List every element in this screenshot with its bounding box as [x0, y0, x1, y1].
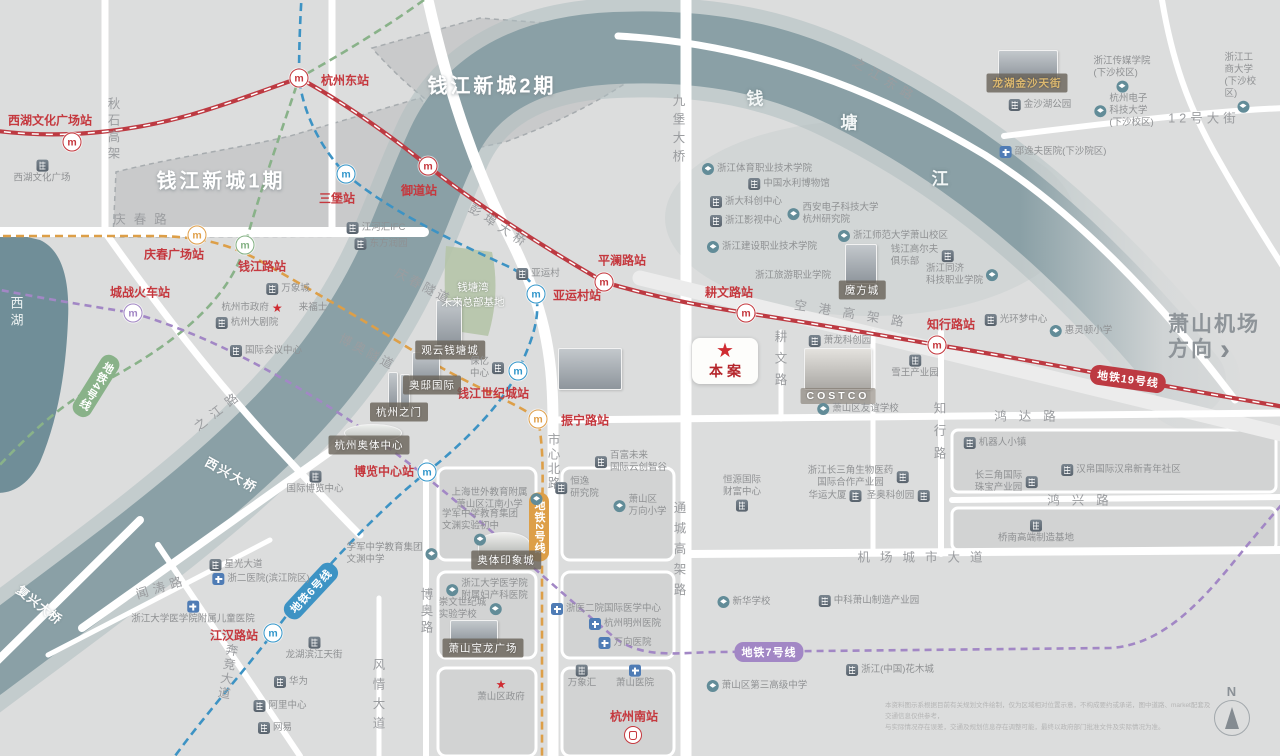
school-icon	[489, 603, 501, 615]
building-plaque: 奥邸国际	[403, 376, 461, 395]
school-icon	[817, 403, 829, 415]
road-label: 知行路	[930, 401, 949, 469]
metro-station-label: 杭州东站	[321, 72, 369, 89]
poi-label: 机器人小镇	[979, 437, 1027, 449]
school-icon	[446, 584, 458, 596]
hospital-icon	[589, 618, 601, 630]
road-label: 彭埠大桥	[465, 198, 534, 252]
poi-label: 金沙湖公园	[1024, 99, 1072, 111]
poi: 浙江(中国)花木城	[846, 664, 934, 676]
compass-circle	[1214, 700, 1250, 736]
poi-label: 恒源国际 财富中心	[723, 475, 761, 499]
poi-label: 浙江旅游职业学院	[755, 270, 831, 282]
hospital-icon	[598, 637, 610, 649]
building-icon	[710, 196, 722, 208]
poi-label: 新华学校	[732, 596, 770, 608]
poi-label: 浙江(中国)花木城	[861, 664, 934, 676]
metro-station-label: 耕文路站	[705, 284, 753, 301]
poi: 阿里中心	[253, 700, 306, 712]
poi: 东方润园	[354, 238, 407, 250]
road-label: 复兴大桥	[13, 580, 67, 628]
metro-line-badge: 地铁7号线	[734, 642, 803, 662]
road-label: 西兴大桥	[202, 452, 262, 497]
poi: 光环梦中心	[985, 314, 1048, 326]
poi-label: 国际博览中心	[286, 484, 343, 496]
metro-station-icon: m	[509, 362, 528, 381]
building-icon	[896, 471, 908, 483]
poi-label: 龙湖滨江天街	[285, 650, 342, 662]
poi-label: 杭州大剧院	[231, 317, 279, 329]
poi-label: 浙江建设职业技术学院	[722, 241, 817, 253]
poi-label: 圣奥科创园	[867, 490, 915, 502]
road-label: 之江路	[189, 384, 247, 435]
poi: 惠灵顿小学	[1050, 325, 1113, 337]
poi: 浙二医院(滨江院区)	[212, 573, 309, 585]
railway-station-icon	[624, 726, 642, 744]
building-icon	[516, 268, 528, 280]
poi-label: 浙江长三角生物医药 国际合作产业园	[808, 465, 894, 489]
poi-label: 国际会议中心	[245, 345, 302, 357]
site-star-icon: ★	[716, 341, 734, 361]
poi: 万象汇	[568, 665, 597, 690]
metro-station-label: 钱江世纪城站	[457, 385, 529, 402]
poi: 星光大道	[209, 559, 262, 571]
poi-label: 惠灵顿小学	[1065, 325, 1113, 337]
poi-label: 中国水利博物馆	[763, 178, 830, 190]
building-icon	[846, 664, 858, 676]
building-icon	[492, 362, 504, 374]
poi-label: 浙江影视中心	[725, 215, 782, 227]
hospital-icon	[629, 665, 641, 677]
star-icon: ★	[496, 679, 507, 691]
poi-label: 浙江体育职业技术学院	[717, 163, 812, 175]
poi: 保亿 中心	[470, 356, 504, 380]
poi: 杭州电子 科技大学 (下沙校区)	[1094, 93, 1153, 129]
building-icon	[253, 700, 265, 712]
poi: 西安电子科技大学 杭州研究院	[787, 202, 878, 226]
poi-label: 百富未来 国际云创智谷	[610, 450, 667, 474]
building-plaque: 龙湖金沙天街	[987, 74, 1068, 93]
poi: 邵逸夫医院(下沙院区)	[1000, 146, 1107, 158]
compass: N	[1212, 684, 1252, 736]
building-icon	[309, 471, 321, 483]
school-icon	[1116, 80, 1128, 92]
poi-label: 浙医二院国际医学中心	[566, 603, 661, 615]
area-label: 钱江新城2期	[427, 70, 556, 99]
metro-station-label: 三堡站	[319, 190, 355, 207]
school-icon	[1094, 105, 1106, 117]
school-icon	[717, 596, 729, 608]
poi: ★萧山区政府	[477, 679, 525, 704]
poi-label: 汉帛国际汉帛新青年社区	[1076, 464, 1181, 476]
poi-label: 萧山区政府	[477, 692, 525, 704]
metro-station-icon: m	[418, 463, 437, 482]
poi-label: 恒逸 研究院	[570, 476, 599, 500]
poi: 汉帛国际汉帛新青年社区	[1061, 464, 1181, 476]
location-map: 钱江新城1期钱江新城2期钱塘江西湖钱塘湾 未来总部基地庆春路秋石高架之江路西兴大…	[0, 0, 1280, 756]
road-label: 博奥路	[417, 587, 436, 637]
building-icon	[809, 335, 821, 347]
poi-label: 万象城	[281, 283, 310, 295]
poi: 国际会议中心	[230, 345, 302, 357]
poi-label: 长三角国际 珠宝产业园	[975, 470, 1023, 494]
road-label: 空港高架路	[793, 294, 917, 332]
poi-label: 萧山医院	[616, 678, 654, 690]
poi: 浙江建设职业技术学院	[707, 241, 817, 253]
poi: 浙江影视中心	[710, 215, 782, 227]
metro-station-icon: m	[337, 165, 356, 184]
poi: 浙江旅游职业学院	[755, 270, 831, 282]
poi: 来福士	[299, 302, 328, 314]
building-icon	[710, 215, 722, 227]
road-label: 闻涛路	[133, 569, 189, 603]
school-icon	[702, 163, 714, 175]
poi: 华运大厦	[808, 490, 861, 502]
building-icon	[230, 345, 242, 357]
poi-label: 保亿 中心	[470, 356, 489, 380]
building-icon	[909, 355, 921, 367]
building-icon	[209, 559, 221, 571]
poi-label: 萧山区 万向小学	[628, 494, 666, 518]
poi: 浙江长三角生物医药 国际合作产业园	[808, 465, 909, 489]
school-icon	[1237, 100, 1249, 112]
building-plaque: 杭州之门	[370, 403, 428, 422]
poi: 国际博览中心	[286, 471, 343, 496]
building-icon	[308, 637, 320, 649]
metro-station-label: 御道站	[401, 182, 437, 199]
project-site-marker: ★ 本案	[692, 338, 758, 384]
building-icon	[1009, 99, 1021, 111]
building-icon	[555, 482, 567, 494]
area-label: 钱江新城1期	[156, 165, 285, 194]
building-icon	[347, 222, 359, 234]
poi-label: 西湖文化广场	[13, 173, 70, 185]
star-icon: ★	[272, 302, 283, 314]
road-label: 秋石高架	[104, 97, 123, 163]
metro-station-label: 平澜路站	[598, 252, 646, 269]
building-plaque: 魔方城	[839, 281, 886, 300]
metro-station-icon: m	[124, 304, 143, 323]
poi-label: 浙江师范大学萧山校区	[853, 230, 948, 242]
poi: 杭州市政府★	[221, 302, 282, 314]
poi: 崇文世纪城 实验学校	[439, 597, 502, 621]
poi: 桥南高端制造基地	[998, 520, 1074, 545]
poi: 新华学校	[717, 596, 770, 608]
poi: 学军中学教育集团 文渊实验初中	[442, 509, 518, 546]
school-icon	[707, 680, 719, 692]
direction-line1: 萧山机场	[1168, 312, 1260, 337]
metro-station-label: 振宁路站	[561, 412, 609, 429]
metro-station-label: 亚运村站	[553, 287, 601, 304]
poi: 浙江大学医学院附属儿童医院	[131, 601, 255, 626]
area-label: 江	[932, 165, 949, 190]
poi-label: 邵逸夫医院(下沙院区)	[1015, 146, 1107, 158]
metro-line-badge: 地铁6号线	[280, 559, 342, 623]
metro-station-icon: m	[63, 133, 82, 152]
school-icon	[986, 269, 998, 281]
poi-label: 江河汇IFC	[362, 222, 406, 234]
building-icon	[964, 437, 976, 449]
hospital-icon	[551, 603, 563, 615]
building-icon	[748, 178, 760, 190]
metro-station-icon: m	[236, 236, 255, 255]
metro-station-icon: m	[527, 285, 546, 304]
site-label: 本案	[709, 361, 745, 381]
building-icon	[576, 665, 588, 677]
area-label: 塘	[841, 109, 858, 134]
road-label: 机场城市大道	[857, 547, 992, 566]
metro-station-label: 江汉路站	[210, 627, 258, 644]
poi: 西湖文化广场	[13, 160, 70, 185]
metro-station-icon: m	[188, 226, 207, 245]
metro-station-icon: m	[419, 157, 438, 176]
road-label: 奔竞大道	[213, 642, 242, 702]
poi-label: 浙江传媒学院 (下沙校区)	[1093, 56, 1150, 80]
compass-north-label: N	[1212, 684, 1252, 699]
poi-label: 浙大科创中心	[725, 196, 782, 208]
school-icon	[474, 533, 486, 545]
poi-label: 杭州市政府	[221, 302, 269, 314]
poi: 华为	[274, 676, 308, 688]
poi: 萧山医院	[616, 665, 654, 690]
hospital-icon	[212, 573, 224, 585]
poi-label: 西安电子科技大学 杭州研究院	[802, 202, 878, 226]
poi: 长三角国际 珠宝产业园	[975, 470, 1038, 494]
poi-label: 华为	[289, 676, 308, 688]
direction-arrow-icon: ›	[1220, 338, 1232, 362]
building-icon	[1025, 476, 1037, 488]
metro-station-label: 庆春广场站	[144, 246, 204, 263]
building-icon	[736, 499, 748, 511]
road-label: 九堡大桥	[669, 94, 688, 168]
road-label: 通城高架路	[670, 501, 689, 604]
road-label: 耕文路	[771, 330, 790, 395]
poi: 机器人小镇	[964, 437, 1027, 449]
poi-label: 崇文世纪城 实验学校	[439, 597, 487, 621]
poi-label: 华运大厦	[808, 490, 846, 502]
poi-label: 杭州电子 科技大学 (下沙校区)	[1109, 93, 1153, 129]
road-label: 之江东路	[849, 52, 922, 106]
building-icon	[819, 595, 831, 607]
building-icon	[274, 676, 286, 688]
road-label: 风情大道	[369, 658, 388, 736]
poi: 杭州大剧院	[216, 317, 279, 329]
poi-label: 网易	[273, 722, 292, 734]
poi: 万象城	[266, 283, 310, 295]
poi-label: 雪王产业园	[891, 368, 939, 380]
poi: 浙医二院国际医学中心	[551, 603, 661, 615]
poi-label: 萧山区第三高级中学	[722, 680, 808, 692]
building-plaque: COSTCO	[801, 388, 876, 404]
poi-label: 万象汇	[568, 678, 597, 690]
poi: 亚运村	[516, 268, 560, 280]
poi: 百富未来 国际云创智谷	[595, 450, 667, 474]
poi: 浙江工商大学 (下沙校区)	[1225, 52, 1262, 113]
metro-station-icon: m	[737, 304, 756, 323]
poi-label: 阿里中心	[268, 700, 306, 712]
school-icon	[787, 208, 799, 220]
building-icon	[36, 160, 48, 172]
poi: 浙江同济 科技职业学院	[926, 263, 998, 287]
hospital-icon	[1000, 146, 1012, 158]
compass-needle-icon	[1225, 707, 1239, 729]
metro-station-label: 知行路站	[927, 316, 975, 333]
poi: 恒源国际 财富中心	[723, 475, 761, 512]
building-plaque: 萧山宝龙广场	[443, 639, 524, 658]
poi: 上海世外教育附属 萧山区江南小学	[451, 487, 542, 511]
poi: 恒逸 研究院	[555, 476, 599, 500]
poi-label: 浙江大学医学院附属儿童医院	[131, 614, 255, 626]
poi: 萧山区 万向小学	[613, 494, 666, 518]
poi-label: 桥南高端制造基地	[998, 533, 1074, 545]
poi: 龙湖滨江天街	[285, 637, 342, 662]
poi: 中国水利博物馆	[748, 178, 830, 190]
poi-label: 亚运村	[531, 268, 560, 280]
poi-label: 学军中学教育集团 文渊实验初中	[442, 509, 518, 533]
school-icon	[707, 241, 719, 253]
metro-station-icon: m	[264, 624, 283, 643]
building-icon	[595, 456, 607, 468]
road-label: 鸿达路	[994, 406, 1068, 425]
map-disclaimer: 本资料图示系根据目前有关规划文件绘制，仅为区域相对位置示意，不构成要约或承诺，图…	[885, 700, 1215, 733]
poi: 网易	[258, 722, 292, 734]
hospital-icon	[187, 601, 199, 613]
metro-station-label: 博览中心站	[354, 463, 414, 480]
building-icon	[1030, 520, 1042, 532]
metro-line-badge: 地铁19号线	[1089, 364, 1167, 394]
building-icon	[1061, 464, 1073, 476]
road-label: 鸿兴路	[1047, 490, 1121, 509]
school-icon	[1050, 325, 1062, 337]
metro-station-label: 城战火车站	[110, 284, 170, 301]
building-icon	[850, 490, 862, 502]
metro-station-icon: m	[290, 69, 309, 88]
metro-station-label: 钱江路站	[238, 258, 286, 275]
poi-label: 光环梦中心	[1000, 314, 1048, 326]
poi-label: 星光大道	[224, 559, 262, 571]
poi: 金沙湖公园	[1009, 99, 1072, 111]
road-label: 博奥隧道	[336, 328, 400, 374]
poi: 学军中学教育集团 文渊中学	[346, 542, 437, 566]
metro-line-badge: 地铁4号线	[69, 351, 123, 420]
poi-label: 万向医院	[613, 637, 651, 649]
poi: 万向医院	[598, 637, 651, 649]
poi-label: 上海世外教育附属 萧山区江南小学	[451, 487, 527, 511]
poi-label: 浙江工商大学 (下沙校区)	[1225, 52, 1262, 100]
map-label-layer: 钱江新城1期钱江新城2期钱塘江西湖钱塘湾 未来总部基地庆春路秋石高架之江路西兴大…	[0, 0, 1280, 756]
poi-label: 中科萧山制造产业园	[834, 595, 920, 607]
building-icon	[941, 250, 953, 262]
poi: 浙大科创中心	[710, 196, 782, 208]
poi: 雪王产业园	[891, 355, 939, 380]
poi-label: 萧山区友谊学校	[832, 403, 899, 415]
poi-label: 萧龙科创园	[824, 335, 872, 347]
building-plaque: 杭州奥体中心	[329, 436, 410, 455]
poi-label: 东方润园	[369, 238, 407, 250]
poi: 萧山区友谊学校	[817, 403, 899, 415]
poi-label: 杭州明州医院	[604, 618, 661, 630]
building-icon	[354, 238, 366, 250]
poi: 萧龙科创园	[809, 335, 872, 347]
road-label: 庆春路	[113, 209, 175, 228]
poi: 圣奥科创园	[867, 490, 930, 502]
poi-label: 浙二医院(滨江院区)	[227, 573, 309, 585]
building-icon	[216, 317, 228, 329]
metro-station-label: 西湖文化广场站	[8, 112, 92, 129]
school-icon	[838, 230, 850, 242]
building-plaque: 奥体印象城	[471, 551, 541, 570]
poi-label: 学军中学教育集团 文渊中学	[346, 542, 422, 566]
area-label: 钱	[747, 85, 764, 110]
poi-label: 浙江同济 科技职业学院	[926, 263, 983, 287]
metro-station-label: 杭州南站	[610, 708, 658, 725]
poi: 萧山区第三高级中学	[707, 680, 808, 692]
poi: 浙江传媒学院 (下沙校区)	[1093, 56, 1150, 93]
building-icon	[917, 490, 929, 502]
airport-direction: 萧山机场 方向 ›	[1168, 312, 1260, 362]
metro-station-icon: m	[529, 410, 548, 429]
school-icon	[613, 500, 625, 512]
poi: 浙江师范大学萧山校区	[838, 230, 948, 242]
school-icon	[531, 493, 543, 505]
building-icon	[266, 283, 278, 295]
building-icon	[258, 722, 270, 734]
poi: 江河汇IFC	[347, 222, 406, 234]
area-label: 西湖	[7, 296, 26, 330]
poi: 中科萧山制造产业园	[819, 595, 920, 607]
building-icon	[985, 314, 997, 326]
poi: 杭州明州医院	[589, 618, 661, 630]
direction-line2: 方向	[1168, 337, 1214, 362]
metro-station-icon: m	[928, 336, 947, 355]
poi-label: 来福士	[299, 302, 328, 314]
school-icon	[426, 548, 438, 560]
poi: 浙江体育职业技术学院	[702, 163, 812, 175]
